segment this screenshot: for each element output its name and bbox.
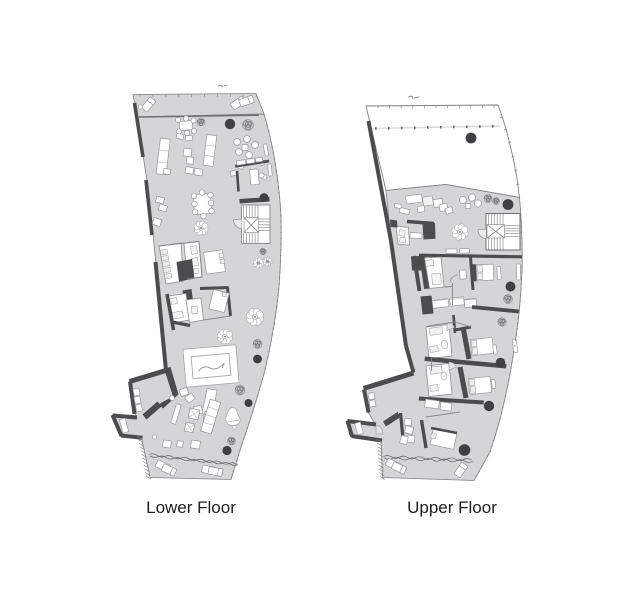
svg-text:Upper Floor: Upper Floor (407, 498, 497, 517)
svg-text:Lower Floor: Lower Floor (146, 498, 236, 517)
